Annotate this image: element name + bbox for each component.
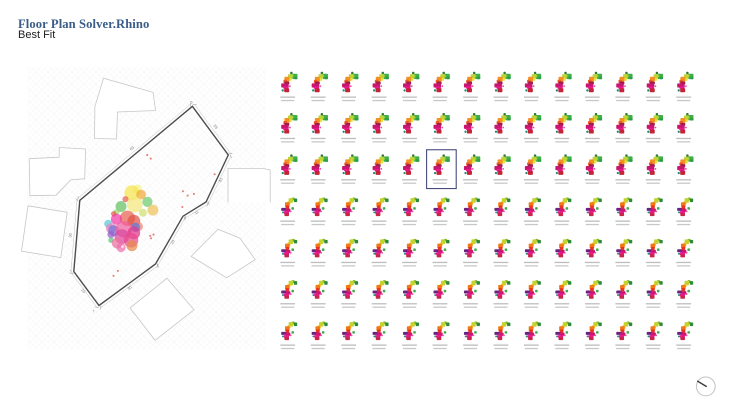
svg-text:7: 7	[93, 310, 95, 314]
svg-text:5: 5	[191, 101, 193, 105]
